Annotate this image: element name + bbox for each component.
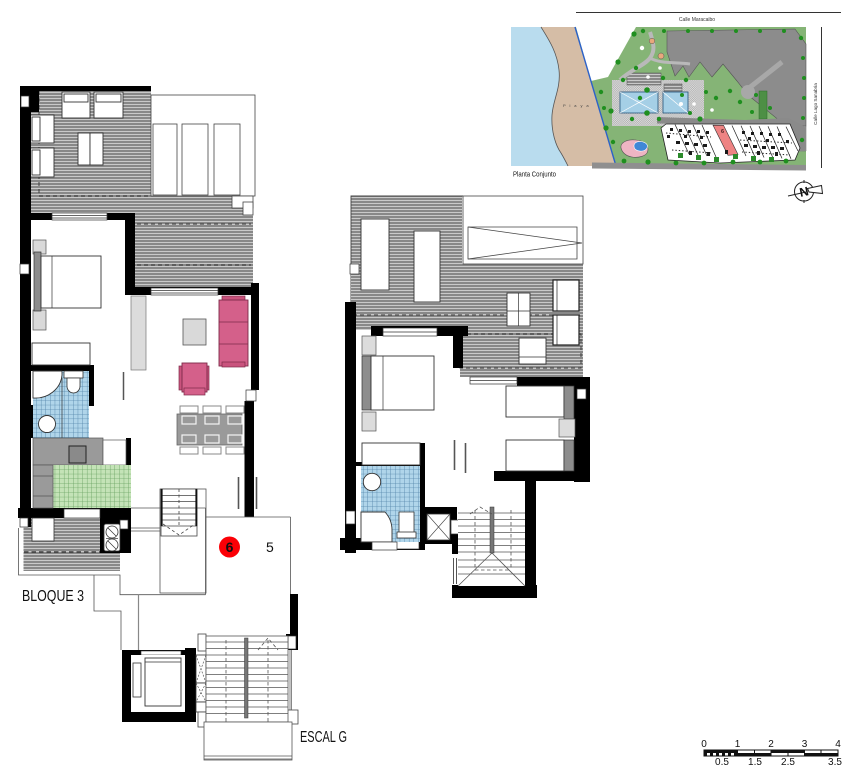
svg-text:BLOQUE 3: BLOQUE 3 <box>22 588 84 605</box>
svg-text:Planta Conjunto: Planta Conjunto <box>513 170 556 179</box>
svg-text:P l a y a: P l a y a <box>563 103 590 108</box>
svg-text:1: 1 <box>735 739 741 750</box>
svg-text:ESCAL G: ESCAL G <box>300 729 347 746</box>
svg-text:2: 2 <box>768 739 774 750</box>
svg-text:4: 4 <box>835 739 841 750</box>
svg-text:5: 5 <box>266 539 274 555</box>
svg-text:Calle Maracaibo: Calle Maracaibo <box>679 17 715 23</box>
svg-text:3.5: 3.5 <box>828 757 842 768</box>
svg-text:6: 6 <box>721 129 724 135</box>
svg-text:0: 0 <box>701 739 707 750</box>
svg-text:3: 3 <box>802 739 808 750</box>
svg-text:Calle Lago Sanabria: Calle Lago Sanabria <box>813 83 818 125</box>
svg-text:0.5: 0.5 <box>715 757 729 768</box>
svg-text:1.5: 1.5 <box>748 757 762 768</box>
svg-text:2.5: 2.5 <box>781 757 795 768</box>
svg-text:6: 6 <box>226 539 234 555</box>
